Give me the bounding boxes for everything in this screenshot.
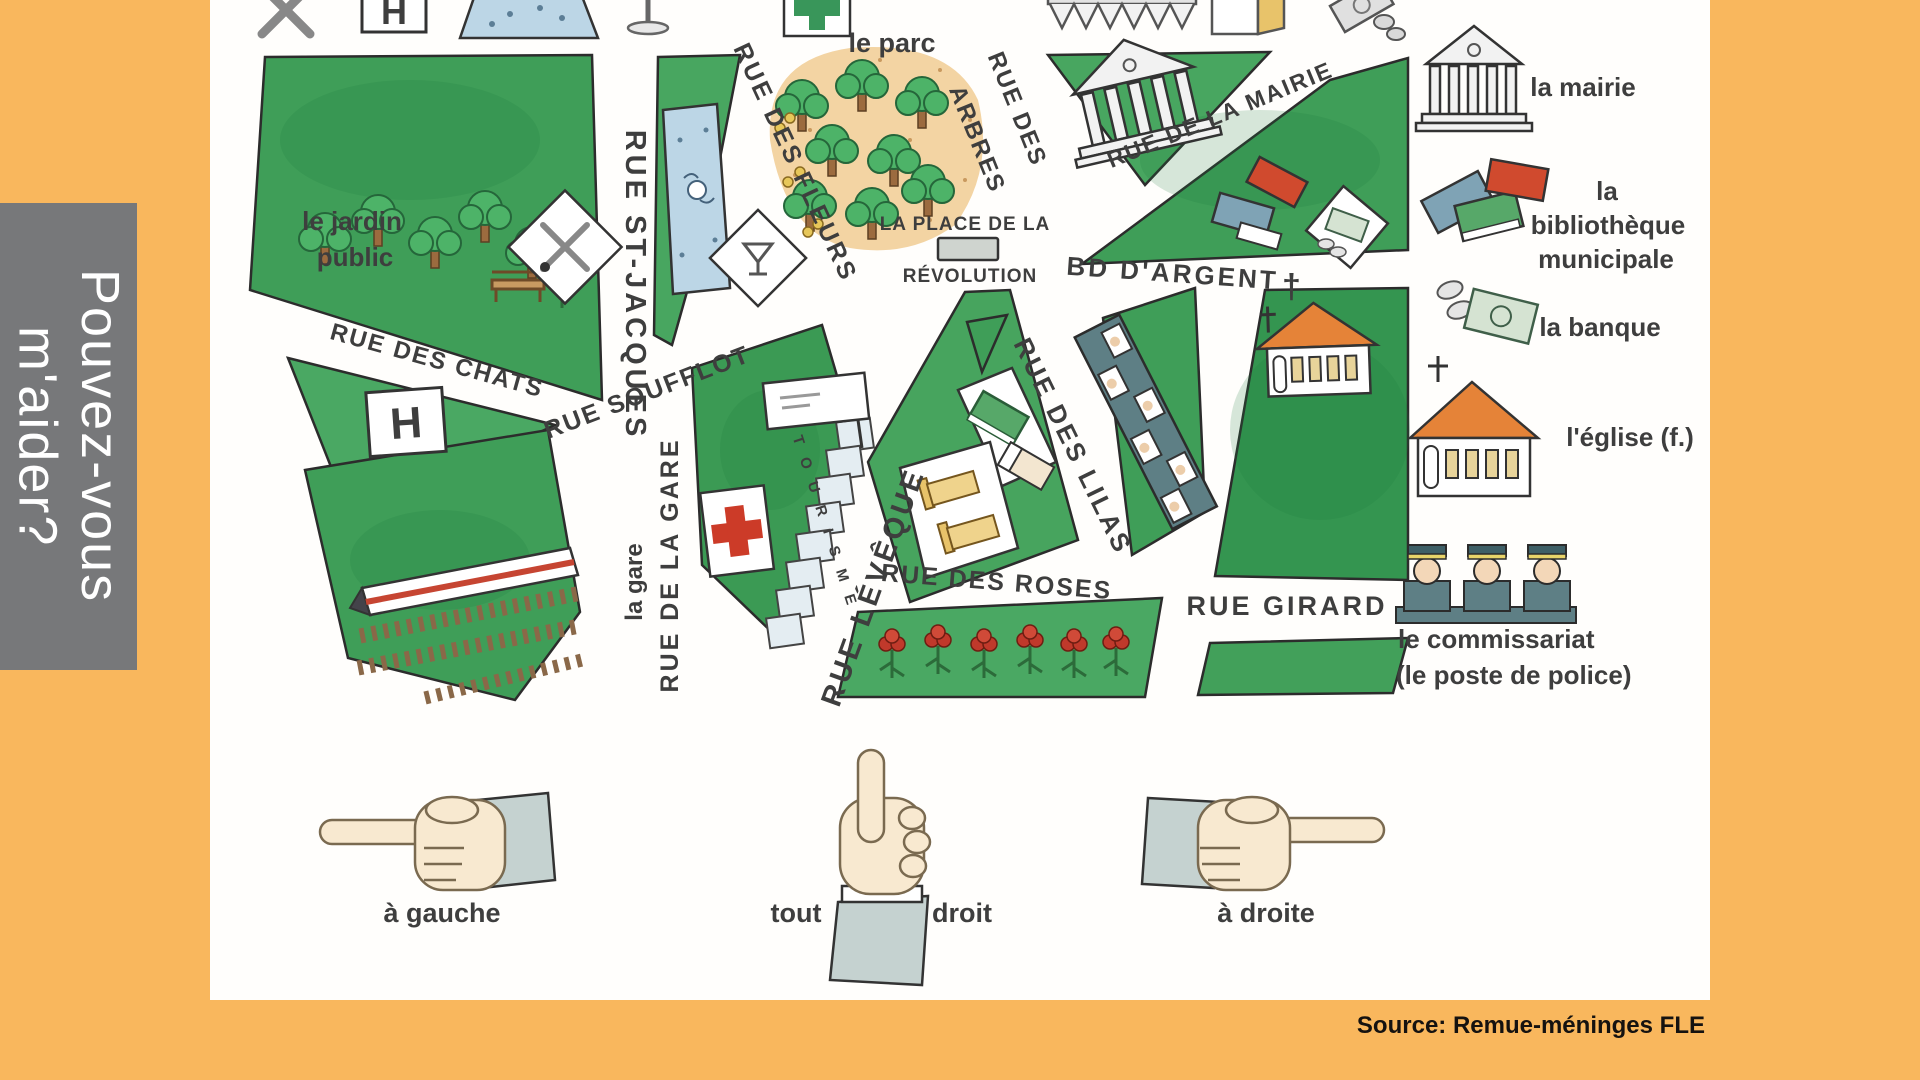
- label-jardin-line2: public: [317, 242, 394, 272]
- question-text: Pouvez-vous m'aider?: [6, 269, 131, 603]
- question-line-1: Pouvez-vous: [69, 269, 132, 603]
- map-panel: H: [210, 0, 1710, 1000]
- direction-straight-left-label: tout: [771, 898, 822, 928]
- question-banner: Pouvez-vous m'aider?: [0, 203, 137, 670]
- hand-pointing-left: [320, 793, 555, 890]
- hotel-icon: H: [362, 0, 426, 32]
- slide: Pouvez-vous m'aider? H: [0, 0, 1920, 1080]
- pharmacy-icon: [784, 0, 850, 36]
- hotel-h-letter: H: [389, 398, 424, 449]
- street-lamp-icon: [628, 0, 668, 34]
- street-argent-cross: †: [1282, 268, 1301, 306]
- swimming-pool-icon: [460, 0, 598, 38]
- street-girard: RUE GIRARD: [1186, 591, 1387, 621]
- monument-icon: [938, 238, 998, 260]
- legend-church-label: l'église (f.): [1566, 422, 1694, 452]
- direction-right-label: à droite: [1217, 898, 1315, 928]
- label-place-line1: LA PLACE DE LA: [880, 214, 1051, 235]
- restaurant-icon: [262, 0, 310, 34]
- legend-library-line2: bibliothèque: [1531, 210, 1686, 240]
- hotel-letter: H: [381, 0, 407, 32]
- legend-money-icon: [1435, 278, 1538, 344]
- legend-town-hall-label: la mairie: [1530, 72, 1636, 102]
- direction-left-label: à gauche: [383, 898, 500, 928]
- label-jardin-line1: le jardin: [302, 206, 402, 236]
- label-place-line2: RÉVOLUTION: [903, 265, 1038, 287]
- legend-police-icon: [1396, 545, 1576, 623]
- street-gare: RUE DE LA GARE: [656, 438, 684, 693]
- legend-church-icon: [1410, 356, 1538, 496]
- label-la-gare: la gare: [621, 543, 648, 620]
- legend-bank-label: la banque: [1539, 312, 1660, 342]
- legend-town-hall-icon: [1416, 26, 1532, 131]
- legend-police-line2: (le poste de police): [1396, 660, 1632, 690]
- legend-books-icon: [1421, 159, 1548, 241]
- hotel-h-map-icon: H: [366, 387, 446, 456]
- hand-pointing-up: [830, 750, 930, 985]
- pharmacy-cross-icon: [700, 485, 774, 576]
- source-credit: Source: Remue-méninges FLE: [1357, 1012, 1705, 1040]
- kiosk-icon: [1212, 0, 1284, 34]
- label-parc: le parc: [848, 28, 935, 58]
- question-line-2: m'aider?: [6, 269, 69, 603]
- hand-pointing-right: [1142, 797, 1384, 890]
- market-icon: [1048, 0, 1196, 28]
- legend-library-line3: municipale: [1538, 244, 1674, 274]
- direction-straight-right-label: droit: [932, 898, 992, 928]
- legend-library-line1: la: [1596, 176, 1618, 206]
- block-bottom-right: [1198, 638, 1408, 695]
- town-map-illustration: H: [210, 0, 1710, 1000]
- legend-police-line1: le commissariat: [1398, 624, 1595, 654]
- money-icon: [1330, 0, 1405, 40]
